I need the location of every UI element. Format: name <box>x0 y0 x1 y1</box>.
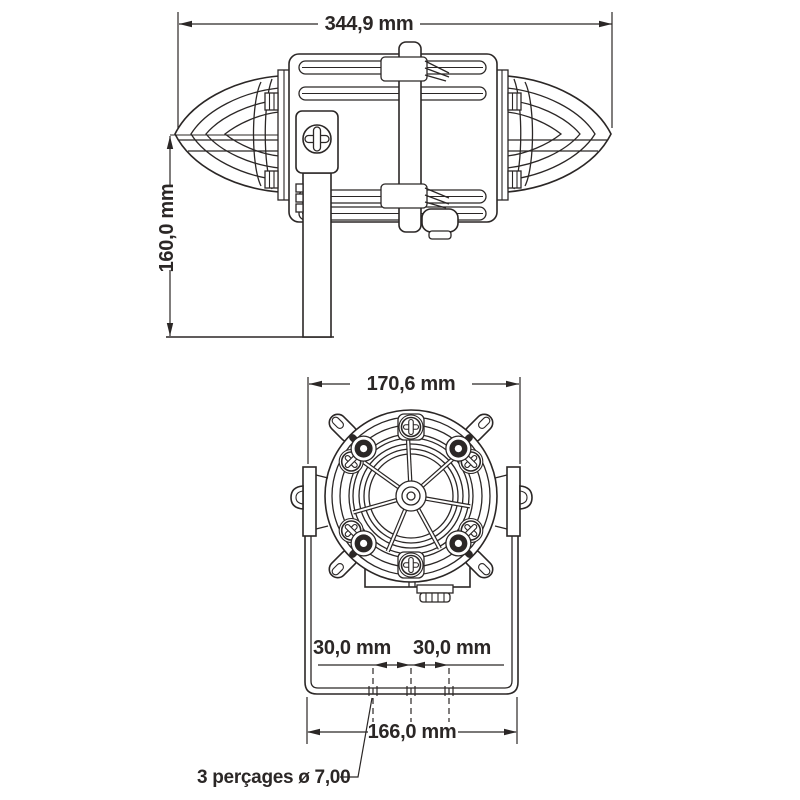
cable-gland-side <box>422 209 458 239</box>
side-height-label: 160,0 mm <box>156 184 178 273</box>
mounting-width-label: 166,0 mm <box>368 721 457 743</box>
front-width-label: 170,6 mm <box>367 373 456 395</box>
side-view: 344,9 mm 160,0 mm <box>156 12 612 337</box>
right-guard-cage <box>507 76 611 192</box>
drill-note-label: 3 perçages ø 7,00 <box>197 767 350 788</box>
dim-hole-spacing: 30,0 mm 30,0 mm <box>313 637 504 722</box>
phillips-screw-icon <box>303 125 331 153</box>
cage-hub <box>396 481 426 511</box>
mounting-pole <box>296 173 331 337</box>
bracket-plate <box>296 111 338 173</box>
side-bracket-left <box>291 467 328 536</box>
side-width-label: 344,9 mm <box>325 13 414 35</box>
drill-centerlines <box>373 668 449 722</box>
technical-drawing: 344,9 mm 160,0 mm <box>0 0 800 800</box>
cable-gland-front <box>417 585 453 602</box>
side-bracket-right <box>495 467 532 536</box>
left-guard-cage <box>175 76 279 192</box>
drill-note: 3 perçages ø 7,00 <box>197 698 372 788</box>
hole-spacing-right-label: 30,0 mm <box>413 637 491 659</box>
hole-spacing-left-label: 30,0 mm <box>313 637 391 659</box>
dim-mounting-width: 166,0 mm <box>307 697 517 744</box>
front-guard-cage <box>325 410 497 582</box>
front-view: 170,6 mm <box>197 373 532 788</box>
